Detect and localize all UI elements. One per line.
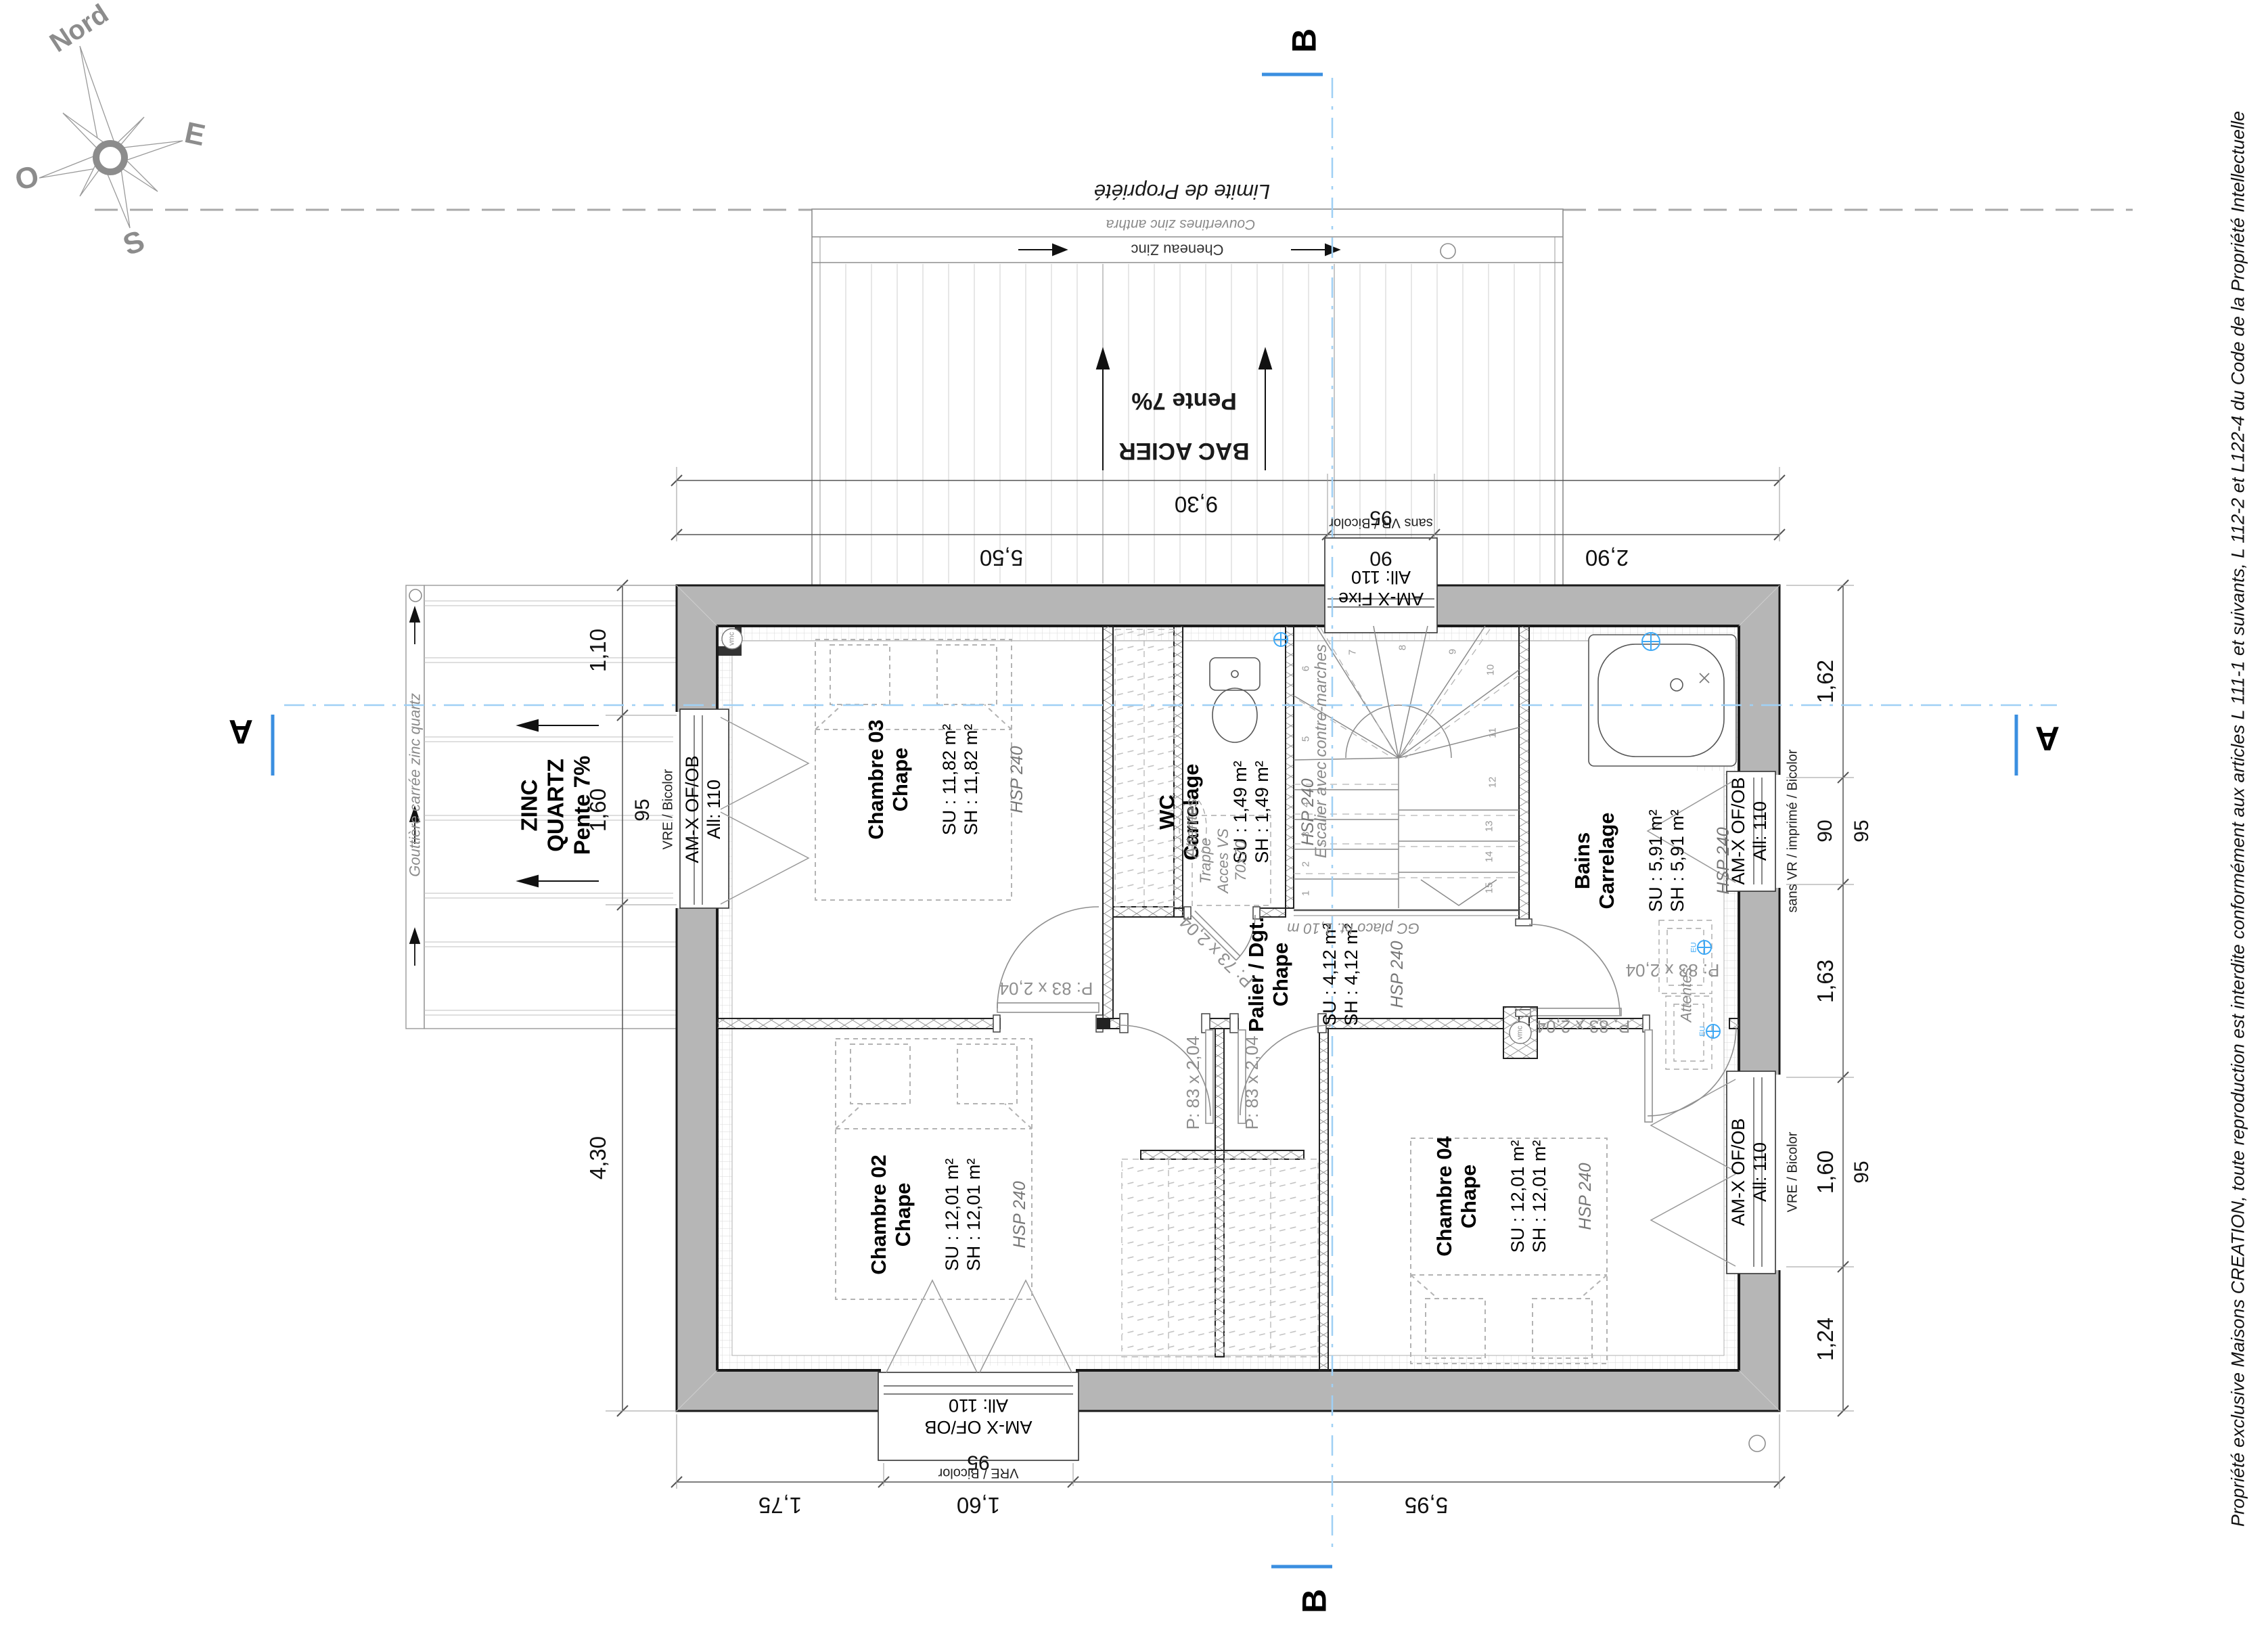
roof-slope-label: Pente 7% [1131,387,1237,414]
room-ch04-label: Chambre 04Chape SU : 12,01 m²SH : 12,01 … [1407,1136,1609,1256]
window-ch04-label: AM-X OF/OBAll: 110 [1728,1118,1771,1226]
window-bottom-label: AM-X OF/OBAll: 110 [924,1394,1032,1437]
stairs-label: Escalier avec contre-marches [1312,644,1331,858]
window-left-label: AM-X OF/OBAll: 110 [682,755,725,863]
section-b-bottom-label: B [1295,1589,1334,1613]
window-top-note: sans VR / Bicolor [1329,515,1432,531]
dim-left-top: 1,10 [585,629,611,672]
eu-label-2: EU [1699,1026,1708,1036]
roof-covering-label: BAC ACIER [1118,437,1249,464]
section-b-top-label: B [1285,28,1324,53]
dim-right-seg5: 1,24 [1813,1318,1838,1361]
property-line-label: Limite de Propriété [1094,179,1270,204]
stair-step-number: 13 [1483,821,1495,832]
vmc-label-topleft: vmc [728,632,737,646]
copyright-notice: Propriété exclusive Maisons CREATION, to… [2227,111,2248,1527]
floor-plan-sheet: Nord E O S Limite de Propriété Couvertin… [0,0,2268,1639]
bains-attentes-label: Attentes [1677,968,1694,1023]
dim-right-seg4-nominal: 95 [1851,1161,1874,1183]
wc-trappe-label: TrappeAcces VS70x70 [1197,828,1250,893]
compass-rose [39,46,183,228]
dim-right-seg1: 1,62 [1813,660,1838,703]
stair-step-number: 14 [1483,851,1495,863]
room-bains-label: BainsCarrelage SU : 5,91 m²SH : 5,91 m² … [1545,809,1747,912]
door-ch04-label: P: 83 x 2,04 [1626,960,1720,980]
stair-step-number: 8 [1397,645,1408,650]
section-a-left-label: A [229,711,253,750]
window-bains-note: sans VR / imprimé / Bicolor [1786,749,1801,912]
stair-step-number: 3 [1300,832,1311,837]
dim-right-seg4: 1,60 [1813,1150,1838,1194]
section-a-right-label: A [2035,718,2060,757]
stair-step-number: 7 [1346,650,1358,655]
roof-coping-label: Couvertines zinc anthra [1106,216,1256,232]
stair-step-number: 6 [1300,666,1311,671]
room-ch03-label: Chambre 03Chape SU : 11,82 m²SH : 11,82 … [838,719,1041,839]
dim-top-right: 2,90 [1585,545,1629,570]
stair-step-number: 1 [1300,891,1311,896]
stair-step-number: 4 [1300,802,1311,807]
dim-left-bottom: 4,30 [585,1136,611,1180]
window-bottom-note: VRE / Bicolor [938,1465,1019,1481]
dim-top-total: 9,30 [1175,491,1218,517]
dim-bottom-window: 1,60 [957,1492,1000,1518]
window-left-note: VRE / Bicolor [661,769,677,850]
room-ch02-label: Chambre 02Chape SU : 12,01 m²SH : 12,01 … [841,1154,1043,1274]
bathtub [1589,635,1736,766]
stair-step-number: 11 [1487,727,1498,738]
stair-step-number: 2 [1300,861,1311,867]
stair-step-number: 9 [1447,649,1458,654]
stair-step-number: 5 [1300,736,1311,742]
dim-right-seg2-nominal: 95 [1851,819,1874,842]
roof-gutter-label: Cheneau Zinc [1131,241,1224,258]
window-ch04-note: VRE / Bicolor [1786,1132,1801,1213]
dim-bottom-right: 5,95 [1405,1492,1448,1518]
porch-gutter-label: Gouttière carrée zinc quartz [406,693,423,876]
dim-bottom-left: 1,75 [758,1492,802,1518]
dim-right-seg3: 1,63 [1813,960,1838,1003]
window-top-label: AM-X FixeAll: 110 [1338,566,1424,609]
door-ch03-label: P: 83 x 2,04 [999,978,1093,998]
stair-step-number: 10 [1484,665,1496,676]
dim-right-seg2: 90 [1814,819,1838,842]
stairs-guard-label: GC placo ht. 1,10 m [1287,920,1420,937]
stair-step-number: 12 [1487,777,1498,788]
porch-material-label: ZINCQUARTZPente 7% [517,756,596,855]
door-dressing-left-label: P: 83 x 2,04 [1183,1036,1204,1130]
vmc-label-ch04: vmc [1516,1026,1525,1039]
eu-label-1: EU [1690,942,1699,952]
door-dressing-right-label: P: 83 x 2,04 [1242,1036,1263,1130]
dim-left-window: 1,60 [585,788,611,832]
dim-left-window-nominal: 95 [631,799,655,821]
door-bains-label: P: 83 x 2,04 [1537,1016,1631,1036]
dim-top-left: 5,50 [980,545,1023,570]
stair-step-number: 15 [1483,882,1495,894]
